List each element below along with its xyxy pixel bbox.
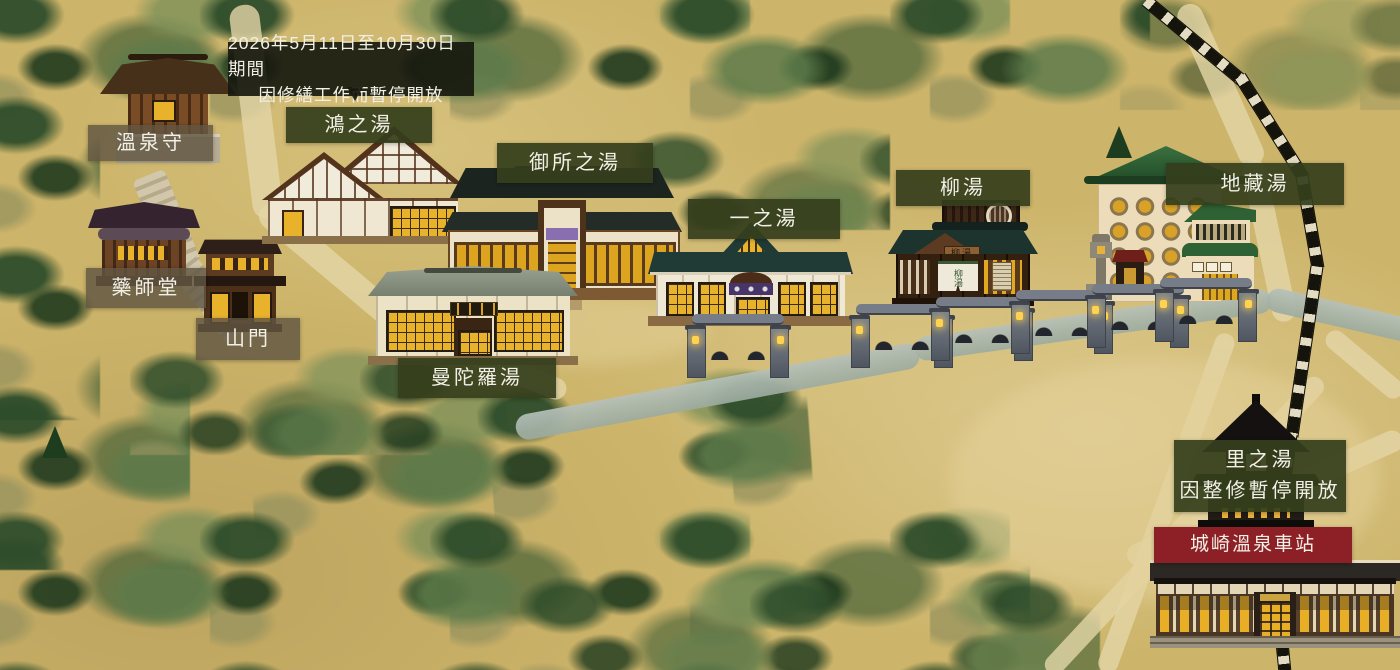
label-goshonoyu[interactable]: 御所之湯 bbox=[497, 143, 653, 183]
label-text: 城崎溫泉車站 bbox=[1190, 530, 1316, 559]
bridge-lantern bbox=[692, 336, 699, 344]
label-text: 一之湯 bbox=[730, 204, 799, 235]
label-yanagiyu[interactable]: 柳湯 bbox=[896, 170, 1030, 206]
stone-lantern bbox=[1092, 234, 1110, 242]
temple-windows bbox=[118, 246, 168, 260]
bridge-deck bbox=[1160, 278, 1252, 289]
bridge-lantern bbox=[1160, 300, 1167, 308]
kinosaki-station-building[interactable] bbox=[1150, 550, 1400, 650]
station-door bbox=[1260, 603, 1290, 636]
entrance-signboard bbox=[450, 302, 498, 316]
label-text: 里之湯 bbox=[1226, 445, 1295, 476]
gate-mid-roof bbox=[194, 276, 286, 286]
temple-roof bbox=[88, 202, 200, 228]
bridge-lantern bbox=[856, 326, 863, 334]
label-ichinoyu[interactable]: 一之湯 bbox=[688, 199, 840, 239]
temple-band bbox=[98, 228, 190, 240]
kinosaki-onsen-map: 柳湯 柳湯 bbox=[0, 0, 1400, 670]
annex-awning-roof bbox=[1182, 243, 1258, 257]
windows-right bbox=[494, 310, 564, 352]
label-text: 藥師堂 bbox=[112, 273, 181, 304]
bridge-lantern bbox=[777, 336, 784, 344]
station-platform-base bbox=[1150, 636, 1400, 648]
notice-line1: 2026年5月11日至10月30日期間 bbox=[228, 30, 474, 83]
notice-line2: 因修繕工作而暫停開放 bbox=[259, 82, 444, 108]
bridge-lantern bbox=[1245, 300, 1252, 308]
label-text: 鴻之湯 bbox=[325, 110, 394, 141]
stone-bridge bbox=[690, 298, 786, 378]
label-konoyu[interactable]: 鴻之湯 bbox=[286, 107, 432, 143]
entrance-noren bbox=[546, 228, 578, 240]
label-text: 山門 bbox=[225, 324, 271, 355]
label-text: 柳湯 bbox=[940, 173, 986, 204]
bridge-lantern bbox=[936, 319, 943, 327]
station-entrance-sign bbox=[1260, 594, 1290, 601]
small-hut-roof bbox=[1112, 250, 1148, 262]
lantern-light bbox=[1097, 246, 1105, 254]
label-text: 御所之湯 bbox=[529, 148, 621, 179]
gate-upper-windows bbox=[212, 258, 268, 270]
entrance-noren bbox=[729, 283, 773, 295]
label-yakushido[interactable]: 藥師堂 bbox=[86, 268, 206, 308]
gate-opening-center bbox=[232, 292, 248, 320]
annex-slat-window bbox=[1196, 224, 1246, 240]
stone-bridge bbox=[1158, 262, 1254, 342]
bridge-arch bbox=[1168, 284, 1244, 324]
konoyu-bathhouse-building[interactable] bbox=[262, 126, 462, 244]
label-text: 曼陀羅湯 bbox=[431, 363, 523, 394]
bridge-lantern bbox=[1016, 312, 1023, 320]
roof-ridge bbox=[424, 268, 522, 273]
shrine-roof bbox=[100, 58, 236, 94]
bridge-deck bbox=[692, 314, 784, 325]
bathhouse-base bbox=[262, 236, 462, 244]
bridge-arch bbox=[700, 320, 776, 360]
window bbox=[810, 282, 838, 316]
label-satonoyu[interactable]: 里之湯 因整修暫停開放 bbox=[1174, 440, 1346, 512]
shrine-window bbox=[152, 100, 176, 122]
forest-texture bbox=[520, 560, 1100, 670]
label-jizoyu[interactable]: 地藏湯 bbox=[1166, 163, 1344, 205]
mandarayu-bathhouse-building[interactable] bbox=[368, 266, 578, 368]
label-mandarayu[interactable]: 曼陀羅湯 bbox=[398, 358, 556, 398]
label-text: 地藏湯 bbox=[1221, 169, 1290, 200]
windows-left bbox=[386, 310, 456, 352]
label-onsenmori[interactable]: 溫泉守 bbox=[88, 125, 213, 161]
main-roof bbox=[648, 252, 853, 274]
closure-status-text: 因整修暫停開放 bbox=[1180, 476, 1341, 507]
label-station[interactable]: 城崎溫泉車站 bbox=[1154, 527, 1352, 563]
door-window bbox=[458, 330, 492, 356]
wing-roof-left bbox=[442, 212, 548, 232]
label-text: 溫泉守 bbox=[116, 128, 185, 159]
bridge-arch bbox=[944, 303, 1020, 343]
conifer-tree-icon bbox=[42, 426, 68, 458]
label-sanmon[interactable]: 山門 bbox=[196, 318, 300, 360]
bridge-lantern bbox=[1092, 306, 1099, 314]
upper-roof bbox=[932, 222, 1028, 231]
konoyu-closure-notice: 2026年5月11日至10月30日期間 因修繕工作而暫停開放 bbox=[228, 42, 474, 96]
bridge-arch bbox=[864, 310, 940, 350]
forest-texture bbox=[0, 80, 100, 420]
